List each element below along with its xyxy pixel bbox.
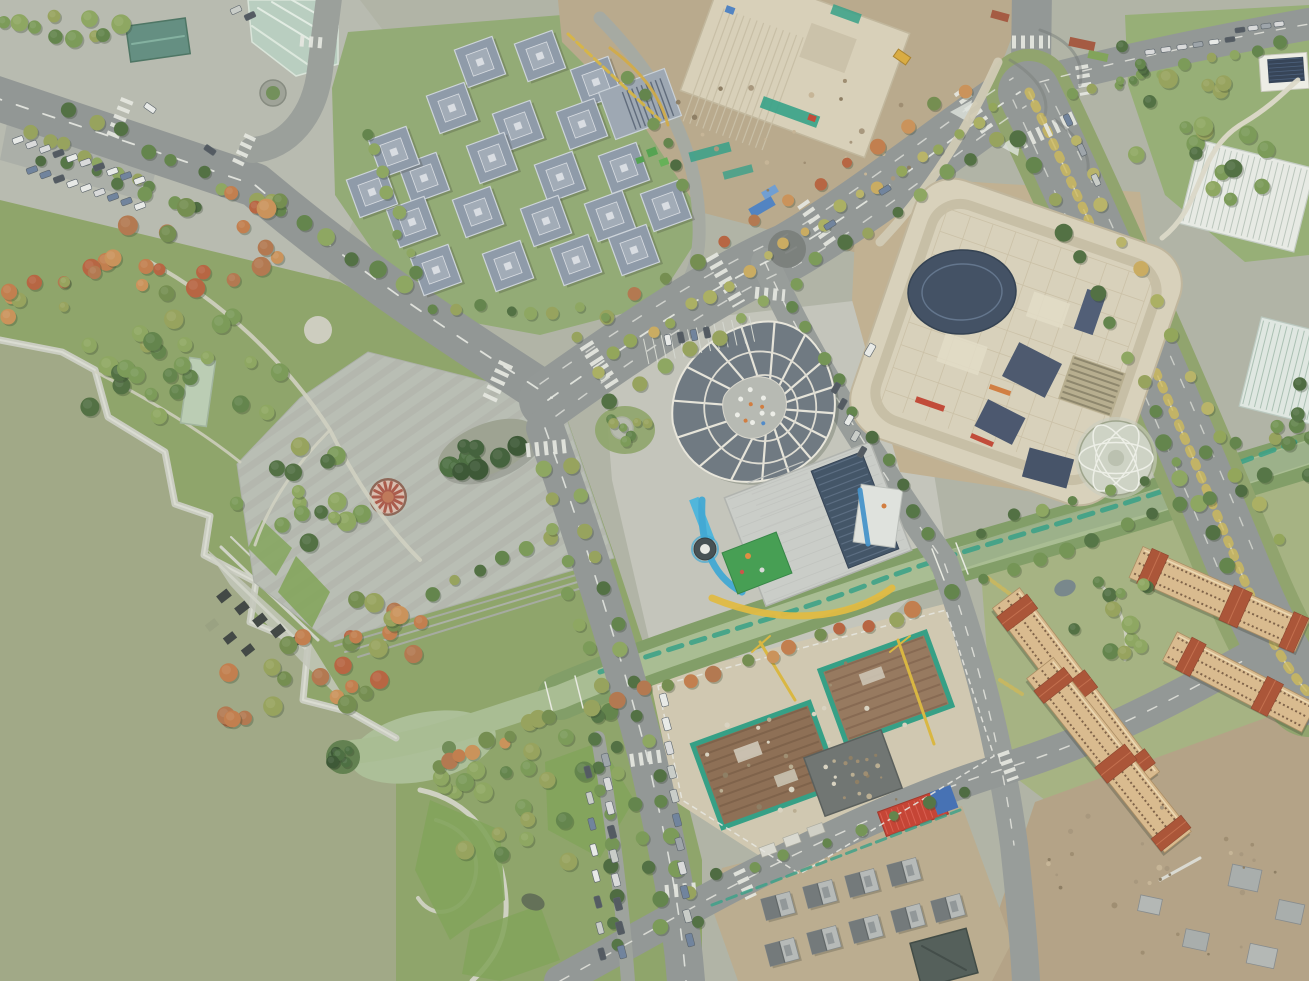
- haze-overlay: [0, 0, 1309, 981]
- aerial-photo-stage: [0, 0, 1309, 981]
- aerial-orthophoto: [0, 0, 1309, 981]
